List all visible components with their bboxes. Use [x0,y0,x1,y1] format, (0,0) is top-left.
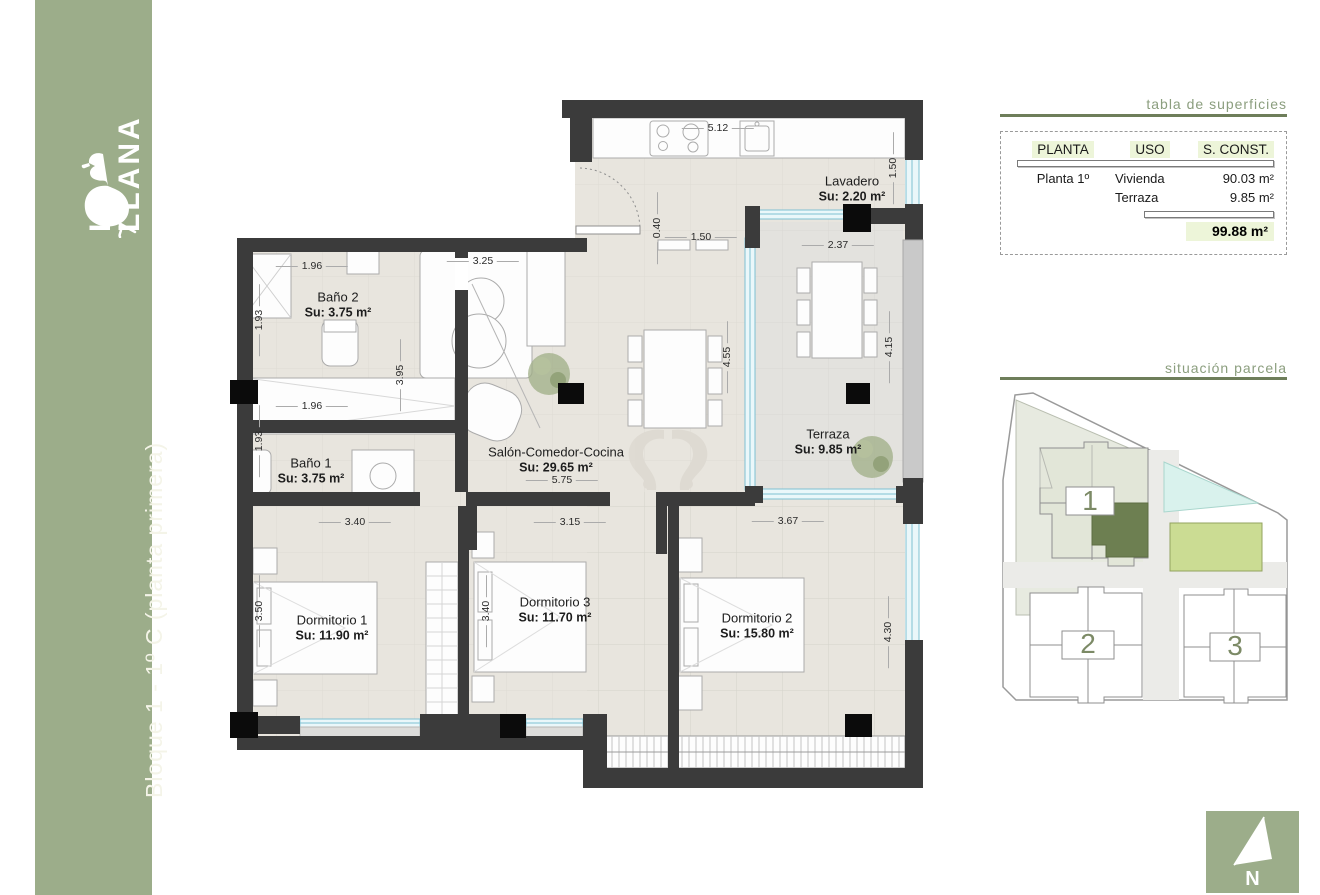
chair [864,268,877,293]
logo-text-llana: LLANA [113,115,146,232]
nightstand [678,538,702,572]
toilet [322,320,358,366]
nightstand [678,676,702,710]
north-arrow-icon [1206,811,1299,871]
table-total-row: 99.88 m² [1001,222,1274,241]
title-rule [1000,114,1287,117]
page: LA LLANA towers Bloque 1 - 1º C (planta … [0,0,1320,895]
entry-door [576,168,640,234]
chair [708,336,722,362]
header-uso: USO [1130,141,1169,158]
chair [708,368,722,394]
window-lavadero-terraza [758,210,844,219]
bath-vanity [352,450,414,502]
room-label-dormitorio2: Dormitorio 2 Su: 15.80 m² [720,610,794,641]
dimension-label: 5.12 [682,122,754,134]
header-planta: PLANTA [1032,141,1094,158]
window-dorm2-right [906,522,919,642]
dimension-label: 4.15 [883,311,895,383]
dimension-label: 1.93 [253,284,265,356]
table-row: Planta 1º Vivienda 90.03 m² [1019,171,1274,186]
header-sconst: S. CONST. [1198,141,1274,158]
room-label-dormitorio3: Dormitorio 3 Su: 11.70 m² [519,594,592,625]
block-2-number: 2 [1080,628,1096,659]
chair [797,300,810,325]
dimension-label: 1.50 [665,231,737,243]
dimension-label: 1.96 [276,400,348,412]
dimension-label: 4.30 [882,596,894,668]
dimension-label: 3.95 [394,339,406,411]
dimension-label: 3.40 [319,516,391,528]
nightstand [253,548,277,574]
room-label-salon: Salón-Comedor-Cocina Su: 29.65 m² [488,444,624,475]
site-plan-title: situación parcela [1000,360,1287,376]
dimension-label: 0.40 [651,192,663,264]
north-label: N [1206,868,1299,891]
dining-table [644,330,706,428]
dimension-label: 1.50 [887,132,899,204]
room-label-bano1: Baño 1 Su: 3.75 m² [278,455,345,486]
dimension-label: 2.37 [802,239,874,251]
window-salon-terraza [745,238,755,490]
site-plan-map: 1 2 3 [998,385,1298,715]
round-table [458,278,504,324]
chair [864,332,877,357]
watermark-logo [629,430,708,490]
chair [797,332,810,357]
chair [628,368,642,394]
sidebar: LA LLANA towers Bloque 1 - 1º C (planta … [35,0,152,895]
cell-planta [1019,190,1107,205]
north-compass: N [1206,811,1299,893]
round-table [452,314,506,368]
dimension-label: 3.67 [752,515,824,527]
cell-uso: Terraza [1107,190,1201,205]
sofa [420,250,532,378]
chair [797,268,810,293]
room-label-bano2: Baño 2 Su: 3.75 m² [305,289,372,320]
cell-sconst: 90.03 m² [1223,171,1274,186]
chair [628,336,642,362]
dimension-label: 3.40 [480,575,492,647]
room-label-dormitorio1: Dormitorio 1 Su: 11.90 m² [296,612,369,643]
surface-table-title: tabla de superficies [1000,96,1287,112]
block-1-number: 1 [1082,485,1098,516]
tv-bench [527,250,565,346]
title-rule [1000,377,1287,380]
window-terraza-bottom [762,489,899,499]
cell-sconst: 9.85 m² [1230,190,1274,205]
table-row: Terraza 9.85 m² [1019,190,1274,205]
room-label-terraza: Terraza Su: 9.85 m² [795,426,862,457]
surface-table: PLANTA USO S. CONST. Planta 1º Vivienda … [1000,131,1287,255]
block-3-number: 3 [1227,630,1243,661]
table-divider-bar [1017,160,1274,167]
logo-text-towers: towers [146,22,177,198]
total-surface-value: 99.88 m² [1186,222,1274,241]
terrace-table [812,262,862,358]
chair [708,400,722,426]
nightstand [253,680,277,706]
surface-table-header: PLANTA USO S. CONST. [1019,142,1274,157]
chair [628,400,642,426]
bath-vanity [347,250,379,274]
dimension-label: 5.75 [526,474,598,486]
dimension-label: 3.15 [534,516,606,528]
room-label-lavadero: Lavadero Su: 2.20 m² [819,173,886,204]
dimension-label: 3.50 [253,575,265,647]
nightstand [472,532,494,558]
window-dorm1-bottom [300,719,420,738]
dimension-label: 3.25 [447,255,519,267]
nightstand [472,676,494,702]
window-lavadero-right [906,158,919,206]
dimension-label: 1.93 [253,405,265,477]
logo: LA LLANA towers [87,22,177,232]
window-dorm3-bottom [526,719,583,738]
pool [1164,462,1258,512]
plan-vertical-title: Bloque 1 - 1º C (planta primera) [141,398,168,798]
dimension-label: 1.96 [276,260,348,272]
balcony-strip [602,736,905,768]
wardrobe [426,562,458,720]
chair [864,300,877,325]
cell-uso: Vivienda [1107,171,1201,186]
table-total-bar [1144,211,1274,218]
armchair [454,377,527,447]
garden [1170,523,1262,571]
dimension-label: 4.55 [721,321,733,393]
cell-planta: Planta 1º [1019,171,1107,186]
